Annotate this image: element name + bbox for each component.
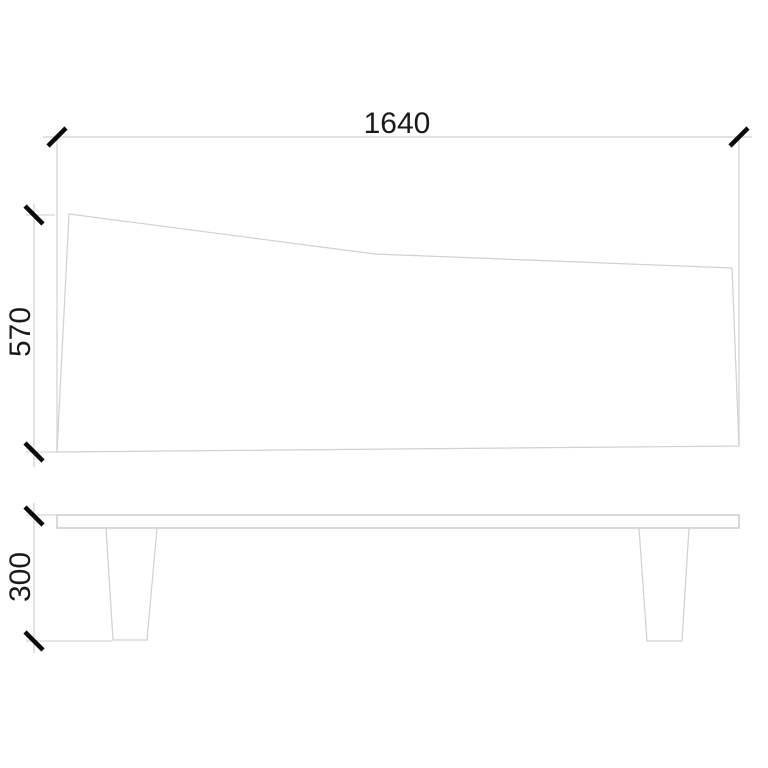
right-leg-outline — [639, 528, 689, 641]
width-dimension: 1640 — [43, 107, 752, 450]
top-view — [57, 214, 739, 452]
depth-dimension: 570 — [4, 204, 57, 467]
tabletop-slab-outline — [57, 515, 739, 528]
drawing-svg: 1640 570 300 — [0, 0, 768, 768]
width-dimension-label: 1640 — [364, 107, 431, 140]
tabletop-outline — [57, 214, 739, 452]
leg-height-dimension-label: 300 — [4, 552, 37, 602]
depth-dimension-label: 570 — [4, 307, 37, 357]
left-leg-outline — [106, 528, 157, 640]
side-view — [57, 515, 739, 641]
technical-drawing: 1640 570 300 — [0, 0, 768, 768]
